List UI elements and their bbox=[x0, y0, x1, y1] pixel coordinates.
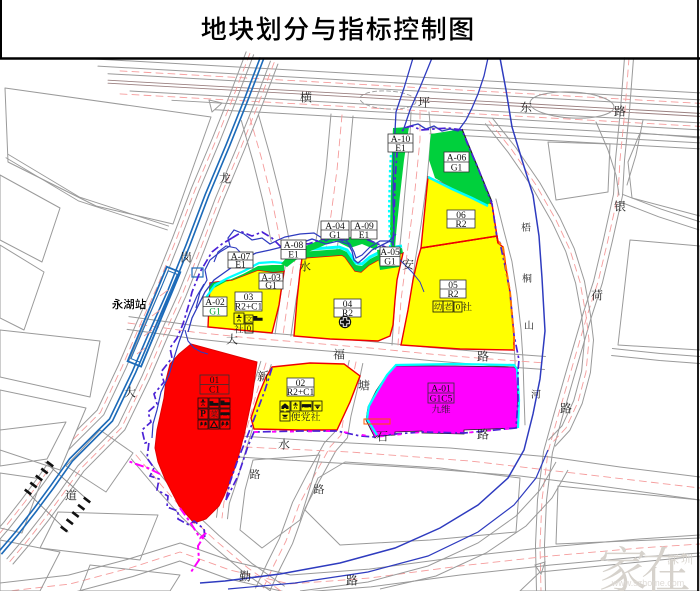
svg-text:E1: E1 bbox=[288, 251, 299, 261]
svg-text:E1: E1 bbox=[359, 231, 370, 241]
svg-text:G1: G1 bbox=[329, 231, 341, 241]
svg-text:G1C5: G1C5 bbox=[430, 394, 453, 404]
svg-text:G1: G1 bbox=[209, 308, 221, 318]
svg-text:R2: R2 bbox=[455, 220, 466, 230]
svg-text:01: 01 bbox=[210, 376, 220, 386]
svg-text:A-06: A-06 bbox=[447, 153, 467, 163]
svg-text:0: 0 bbox=[456, 302, 460, 312]
svg-text:R2+C1: R2+C1 bbox=[287, 388, 315, 398]
svg-text:R2: R2 bbox=[447, 290, 458, 300]
svg-text:G1: G1 bbox=[265, 281, 277, 291]
svg-text:03: 03 bbox=[244, 293, 254, 303]
svg-text:0: 0 bbox=[247, 323, 251, 333]
svg-text:G1: G1 bbox=[451, 163, 463, 173]
svg-text:E1: E1 bbox=[395, 144, 406, 154]
svg-text:C1: C1 bbox=[209, 386, 220, 396]
svg-text:A-08: A-08 bbox=[284, 241, 304, 251]
svg-text:www.szhome.com: www.szhome.com bbox=[611, 578, 685, 588]
svg-text:G1: G1 bbox=[384, 258, 396, 268]
svg-text:A-05: A-05 bbox=[380, 248, 400, 258]
svg-text:A-02: A-02 bbox=[205, 298, 225, 308]
svg-text:P: P bbox=[200, 410, 206, 420]
svg-text:A-01: A-01 bbox=[431, 384, 451, 394]
svg-text:E1: E1 bbox=[235, 260, 246, 270]
svg-text:R2+C1: R2+C1 bbox=[235, 303, 263, 313]
